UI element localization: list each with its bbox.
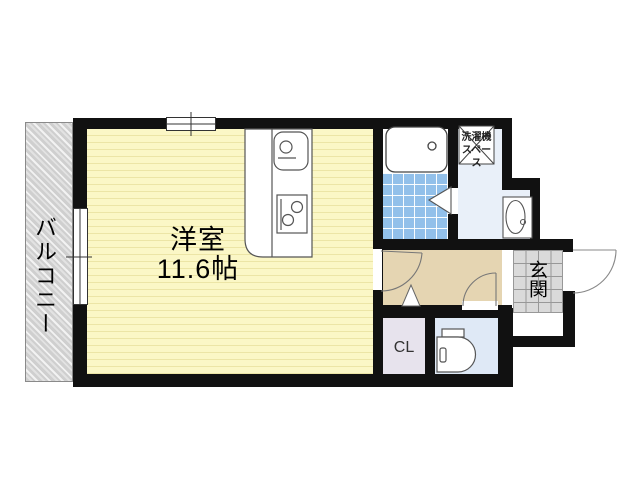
room-door-triangle-icon: [402, 285, 420, 306]
kitchen-sink-icon: [274, 132, 308, 170]
toilet-icon: [437, 329, 476, 372]
entrance-door-arc: [573, 250, 616, 293]
washer-label-line1: 洗濯機: [459, 131, 494, 144]
wash-basin-icon: [503, 197, 532, 238]
closet-label: CL: [388, 339, 420, 357]
entrance-label: 玄関: [528, 253, 550, 305]
kitchen-stove-icon: [277, 195, 307, 233]
bathroom-folding-door-icon: [429, 187, 451, 214]
fixtures-layer: [0, 0, 640, 480]
room-hallway-door-arc: [381, 251, 422, 291]
main-room-size: 11.6帖: [118, 255, 278, 284]
toilet-door-arc: [463, 273, 496, 306]
balcony-label: バルコニー: [30, 196, 60, 356]
washing-machine-space-label: 洗濯機 スペース: [459, 131, 494, 170]
floor-plan: 洋室 11.6帖 バルコニー 玄関 CL 洗濯機 スペース: [0, 0, 640, 480]
bathtub-icon: [386, 127, 447, 172]
washer-label-line2: スペース: [459, 144, 494, 170]
main-room-label: 洋室 11.6帖: [118, 226, 278, 284]
main-room-name: 洋室: [118, 226, 278, 255]
